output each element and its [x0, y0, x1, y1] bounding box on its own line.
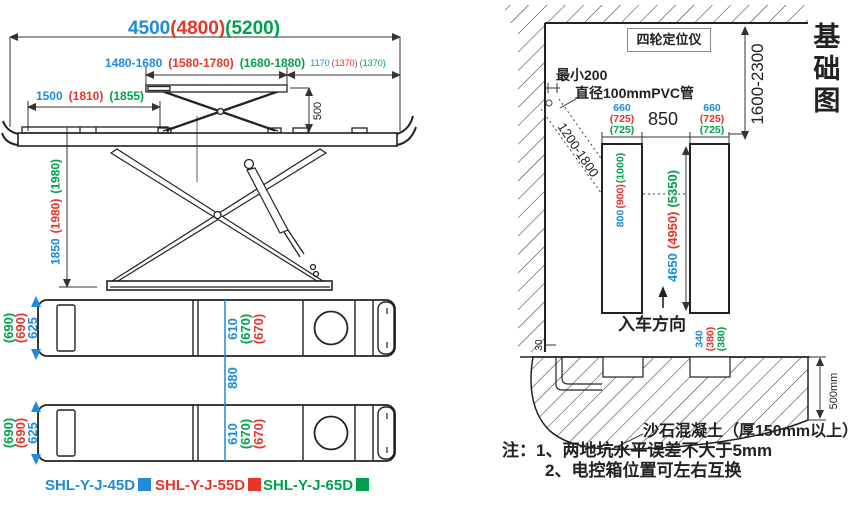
- dim-front-55: (1810): [69, 90, 104, 103]
- dim-max-height-45: 1850: [50, 238, 63, 265]
- dim-rear-length: 1170(1370)(1370): [310, 59, 385, 68]
- legend-swatch-green: [356, 478, 369, 491]
- legend-model-65d: SHL-Y-J-65D: [263, 477, 369, 494]
- dim-pit-length-55: (4950): [666, 212, 680, 250]
- dim-pit-width-left: 660 (725) (725): [610, 103, 635, 136]
- platform-top-views: [31, 296, 395, 465]
- dim-pit-head-65: (1000): [615, 153, 626, 183]
- dim-track-width-55-b: (670): [252, 419, 266, 449]
- wheel-aligner-label: 四轮定位仪: [636, 33, 701, 47]
- dim-pit-head-length: 800(900)(1000): [615, 153, 626, 227]
- pvc-pipe-label: 直径100mmPVC管: [575, 86, 694, 101]
- note-1: 1、两地坑水平误差不大于5mm: [536, 442, 772, 460]
- dim-pit-head-55: (900): [615, 184, 626, 209]
- dim-pit-head-45: 800: [615, 210, 626, 228]
- foundation-title: 基础图: [810, 22, 838, 118]
- dim-rear-65: (1370): [360, 59, 386, 68]
- dim-secondary-lift-height: 500: [313, 102, 325, 120]
- min-clearance-label: 最小200: [556, 68, 607, 83]
- dim-platform-width-45: 625: [26, 317, 40, 339]
- dim-pit-width-left-65: (725): [610, 125, 635, 136]
- dim-track-gap: 880: [226, 367, 240, 389]
- legend-model-55d-label: SHL-Y-J-55D: [155, 477, 245, 494]
- dim-pit-length-45: 4650: [666, 253, 680, 282]
- wheel-aligner-box: 四轮定位仪: [627, 28, 711, 52]
- dim-pit-gap: 850: [648, 110, 678, 129]
- technical-drawing-page: 4500(4800)(5200) 1480-1680(1580-1780)(16…: [0, 0, 861, 513]
- dim-wall-gap: 30: [535, 339, 546, 350]
- dim-max-height-65: (1980): [50, 159, 63, 194]
- legend-model-45d-label: SHL-Y-J-45D: [45, 477, 135, 494]
- dim-pit-width-right: 660 (725) (725): [700, 103, 725, 136]
- dim-front-65: (1855): [109, 90, 144, 103]
- dim-rear-55: (1370): [332, 59, 358, 68]
- dim-front-platform: 1500(1810)(1855): [36, 90, 144, 103]
- dim-lift-range-55: (1580-1780): [168, 57, 233, 70]
- foundation-note-line-1: 注：1、两地坑水平误差不大于5mm: [502, 442, 772, 460]
- legend-model-65d-label: SHL-Y-J-65D: [263, 477, 353, 494]
- dim-pit-width-right-65: (725): [700, 125, 725, 136]
- dim-lift-range-65: (1680-1880): [240, 57, 305, 70]
- legend-swatch-red: [248, 478, 261, 491]
- dim-overall-65: (5200): [225, 19, 280, 39]
- legend-swatch-blue: [138, 478, 151, 491]
- concrete-note-label: 沙石混凝土（厚150mm以上）: [643, 424, 858, 441]
- dim-max-height: 1850(1980)(1980): [50, 159, 63, 265]
- note-2: 2、电控箱位置可左右互换: [545, 461, 741, 480]
- notes-title: 注：: [502, 442, 536, 460]
- dim-overall-55: (4800): [170, 19, 225, 39]
- dim-lift-range: 1480-1680(1580-1780)(1680-1880): [105, 57, 305, 70]
- dim-front-45: 1500: [36, 90, 63, 103]
- side-view-dimension-lines: [10, 37, 400, 287]
- dim-track-width-55: (670): [252, 314, 266, 344]
- dim-rear-45: 1170: [310, 59, 329, 68]
- dim-pit-end-offset-65: (380): [716, 327, 727, 352]
- dim-pit-length: 4650(4950)(5350): [666, 170, 680, 282]
- dim-slab-depth: 500mm: [829, 373, 841, 410]
- dim-overall-45: 4500: [128, 19, 170, 39]
- dim-max-height-55: (1980): [50, 199, 63, 234]
- dim-bay-width-range: 1600-2300: [749, 43, 767, 124]
- foundation-notes: 注：1、两地坑水平误差不大于5mm 2、电控箱位置可左右互换: [502, 442, 772, 480]
- foundation-note-line-2: 2、电控箱位置可左右互换: [545, 462, 772, 480]
- dim-overall-length: 4500(4800)(5200): [128, 19, 280, 39]
- dim-pit-length-65: (5350): [666, 170, 680, 208]
- legend-model-45d: SHL-Y-J-45D: [45, 477, 151, 494]
- legend-model-55d: SHL-Y-J-55D: [155, 477, 261, 494]
- dim-lift-range-45: 1480-1680: [105, 57, 162, 70]
- drive-in-direction-label: 入车方向: [618, 316, 686, 334]
- scissor-lift-side-view: [2, 85, 416, 290]
- dim-platform-width-45-b: 625: [26, 422, 40, 444]
